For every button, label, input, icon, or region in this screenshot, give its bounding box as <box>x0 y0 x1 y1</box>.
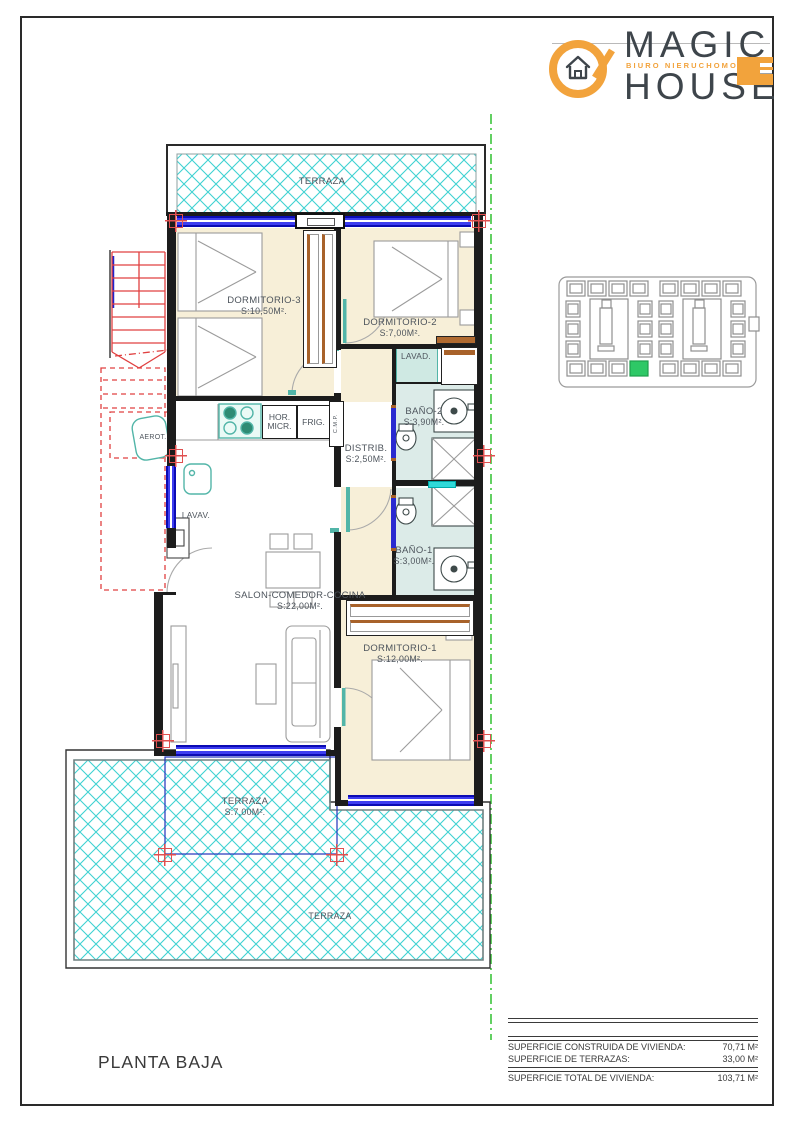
label-lavav: LAVAV. <box>182 510 210 521</box>
window-terrace-left <box>177 216 295 227</box>
wall <box>392 346 396 405</box>
room-name: LAVAD. <box>401 351 431 362</box>
bed-dorm1 <box>372 620 472 760</box>
shower-bano2 <box>432 438 476 480</box>
wardrobe-slat <box>350 604 470 617</box>
room-area: S:22,00M². <box>234 601 365 612</box>
fridge-label: FRIG. <box>302 418 325 427</box>
room-area: S:7,00M². <box>222 807 268 818</box>
survey-cross <box>165 210 187 232</box>
wall <box>335 750 341 806</box>
cmp-label: C.M.P. <box>332 414 341 433</box>
survey-cross <box>152 730 174 752</box>
room-label-distrib: DISTRIB. S:2,50M². <box>345 443 388 465</box>
wardrobe-between-bedrooms <box>303 230 337 368</box>
stove <box>219 404 261 438</box>
closet-top-right <box>441 347 478 385</box>
room-label-lavad: LAVAD. <box>401 351 431 362</box>
room-name: DORMITORIO-3 <box>227 295 301 306</box>
label-aerot: AEROT. <box>139 432 166 443</box>
wardrobe-slat <box>307 234 319 364</box>
room-name: DORMITORIO-2 <box>363 317 437 328</box>
toilet-bano1 <box>396 498 416 524</box>
room-name: DORMITORIO-1 <box>363 643 437 654</box>
fridge-box: FRIG. <box>297 405 330 439</box>
nightstand <box>460 232 475 247</box>
terrace-front <box>66 750 490 968</box>
room-label-terraza-top: TERRAZA <box>299 176 345 187</box>
room-label-terraza-front: TERRAZA S:7,00M². <box>222 796 268 818</box>
wardrobe-slat <box>350 620 470 633</box>
cmp-cabinet: C.M.P. <box>329 401 344 447</box>
window-dorm1 <box>348 795 474 806</box>
room-name: BAÑO-2 <box>404 406 445 417</box>
nightstand <box>460 310 475 325</box>
closet-shelf <box>444 350 475 355</box>
bed-dorm2 <box>374 232 475 325</box>
room-area: S:2,50M². <box>345 454 388 465</box>
room-name: DISTRIB. <box>345 443 388 454</box>
dorm2-shelf <box>436 336 476 344</box>
room-label-bano1: BAÑO-1 S:3,00M². <box>394 545 435 567</box>
wall <box>392 455 396 495</box>
site-plan-minimap <box>559 277 759 387</box>
survey-cross <box>473 730 495 752</box>
room-label-dorm3: DORMITORIO-3 S:10,50M². <box>227 295 301 317</box>
appliance-name: AEROT. <box>139 432 166 443</box>
appliance-name: LAVAV. <box>182 510 210 521</box>
bath-door-blue <box>391 495 396 551</box>
room-name: SALON-COMEDOR-COCINA <box>234 590 365 601</box>
wall <box>474 216 483 806</box>
pier-detail <box>307 218 335 226</box>
room-label-dorm2: DORMITORIO-2 S:7,00M². <box>363 317 437 339</box>
room-label-salon: SALON-COMEDOR-COCINA S:22,00M². <box>234 590 365 612</box>
survey-cross <box>473 445 495 467</box>
wall <box>167 396 341 401</box>
room-area: S:10,50M². <box>227 306 301 317</box>
kitchen-sink <box>184 464 211 494</box>
sofa <box>286 626 330 742</box>
room-area: S:7,00M². <box>363 328 437 339</box>
survey-cross <box>468 210 490 232</box>
room-name: TERRAZA <box>222 796 268 807</box>
bed-dorm3-b <box>178 318 262 396</box>
window-kitchen-side <box>166 466 176 528</box>
door-hall <box>348 489 391 530</box>
coffee-table <box>256 664 276 704</box>
window-salon <box>176 745 326 756</box>
bath-shelf <box>428 481 456 488</box>
tv-unit <box>171 626 186 742</box>
room-name: TERRAZA <box>299 176 345 187</box>
room-area: S:12,00M². <box>363 654 437 665</box>
washing-machine-bano1 <box>434 548 476 590</box>
survey-cross <box>326 844 348 866</box>
survey-cross <box>154 844 176 866</box>
oven-microwave-box: HOR. MICR. <box>262 405 297 439</box>
room-label-bano2: BAÑO-2 S:3,90M². <box>404 406 445 428</box>
room-label-terraza-front-outer: TERRAZA <box>308 911 351 922</box>
wardrobe-slat <box>322 234 334 364</box>
room-area: S:3,00M². <box>394 556 435 567</box>
window-pier <box>295 213 345 229</box>
bath-door-blue <box>391 405 396 461</box>
room-area: S:3,90M². <box>404 417 445 428</box>
microwave-label: MICR. <box>267 422 291 431</box>
survey-cross <box>165 445 187 467</box>
room-label-dorm1: DORMITORIO-1 S:12,00M². <box>363 643 437 665</box>
window-terrace-right <box>345 216 471 227</box>
room-name: TERRAZA <box>308 911 351 922</box>
plan-sheet: MAGIC BIURO NIERUCHOMOŚCI HOUSE <box>0 0 793 1123</box>
shower-bano1 <box>432 486 476 526</box>
room-name: BAÑO-1 <box>394 545 435 556</box>
